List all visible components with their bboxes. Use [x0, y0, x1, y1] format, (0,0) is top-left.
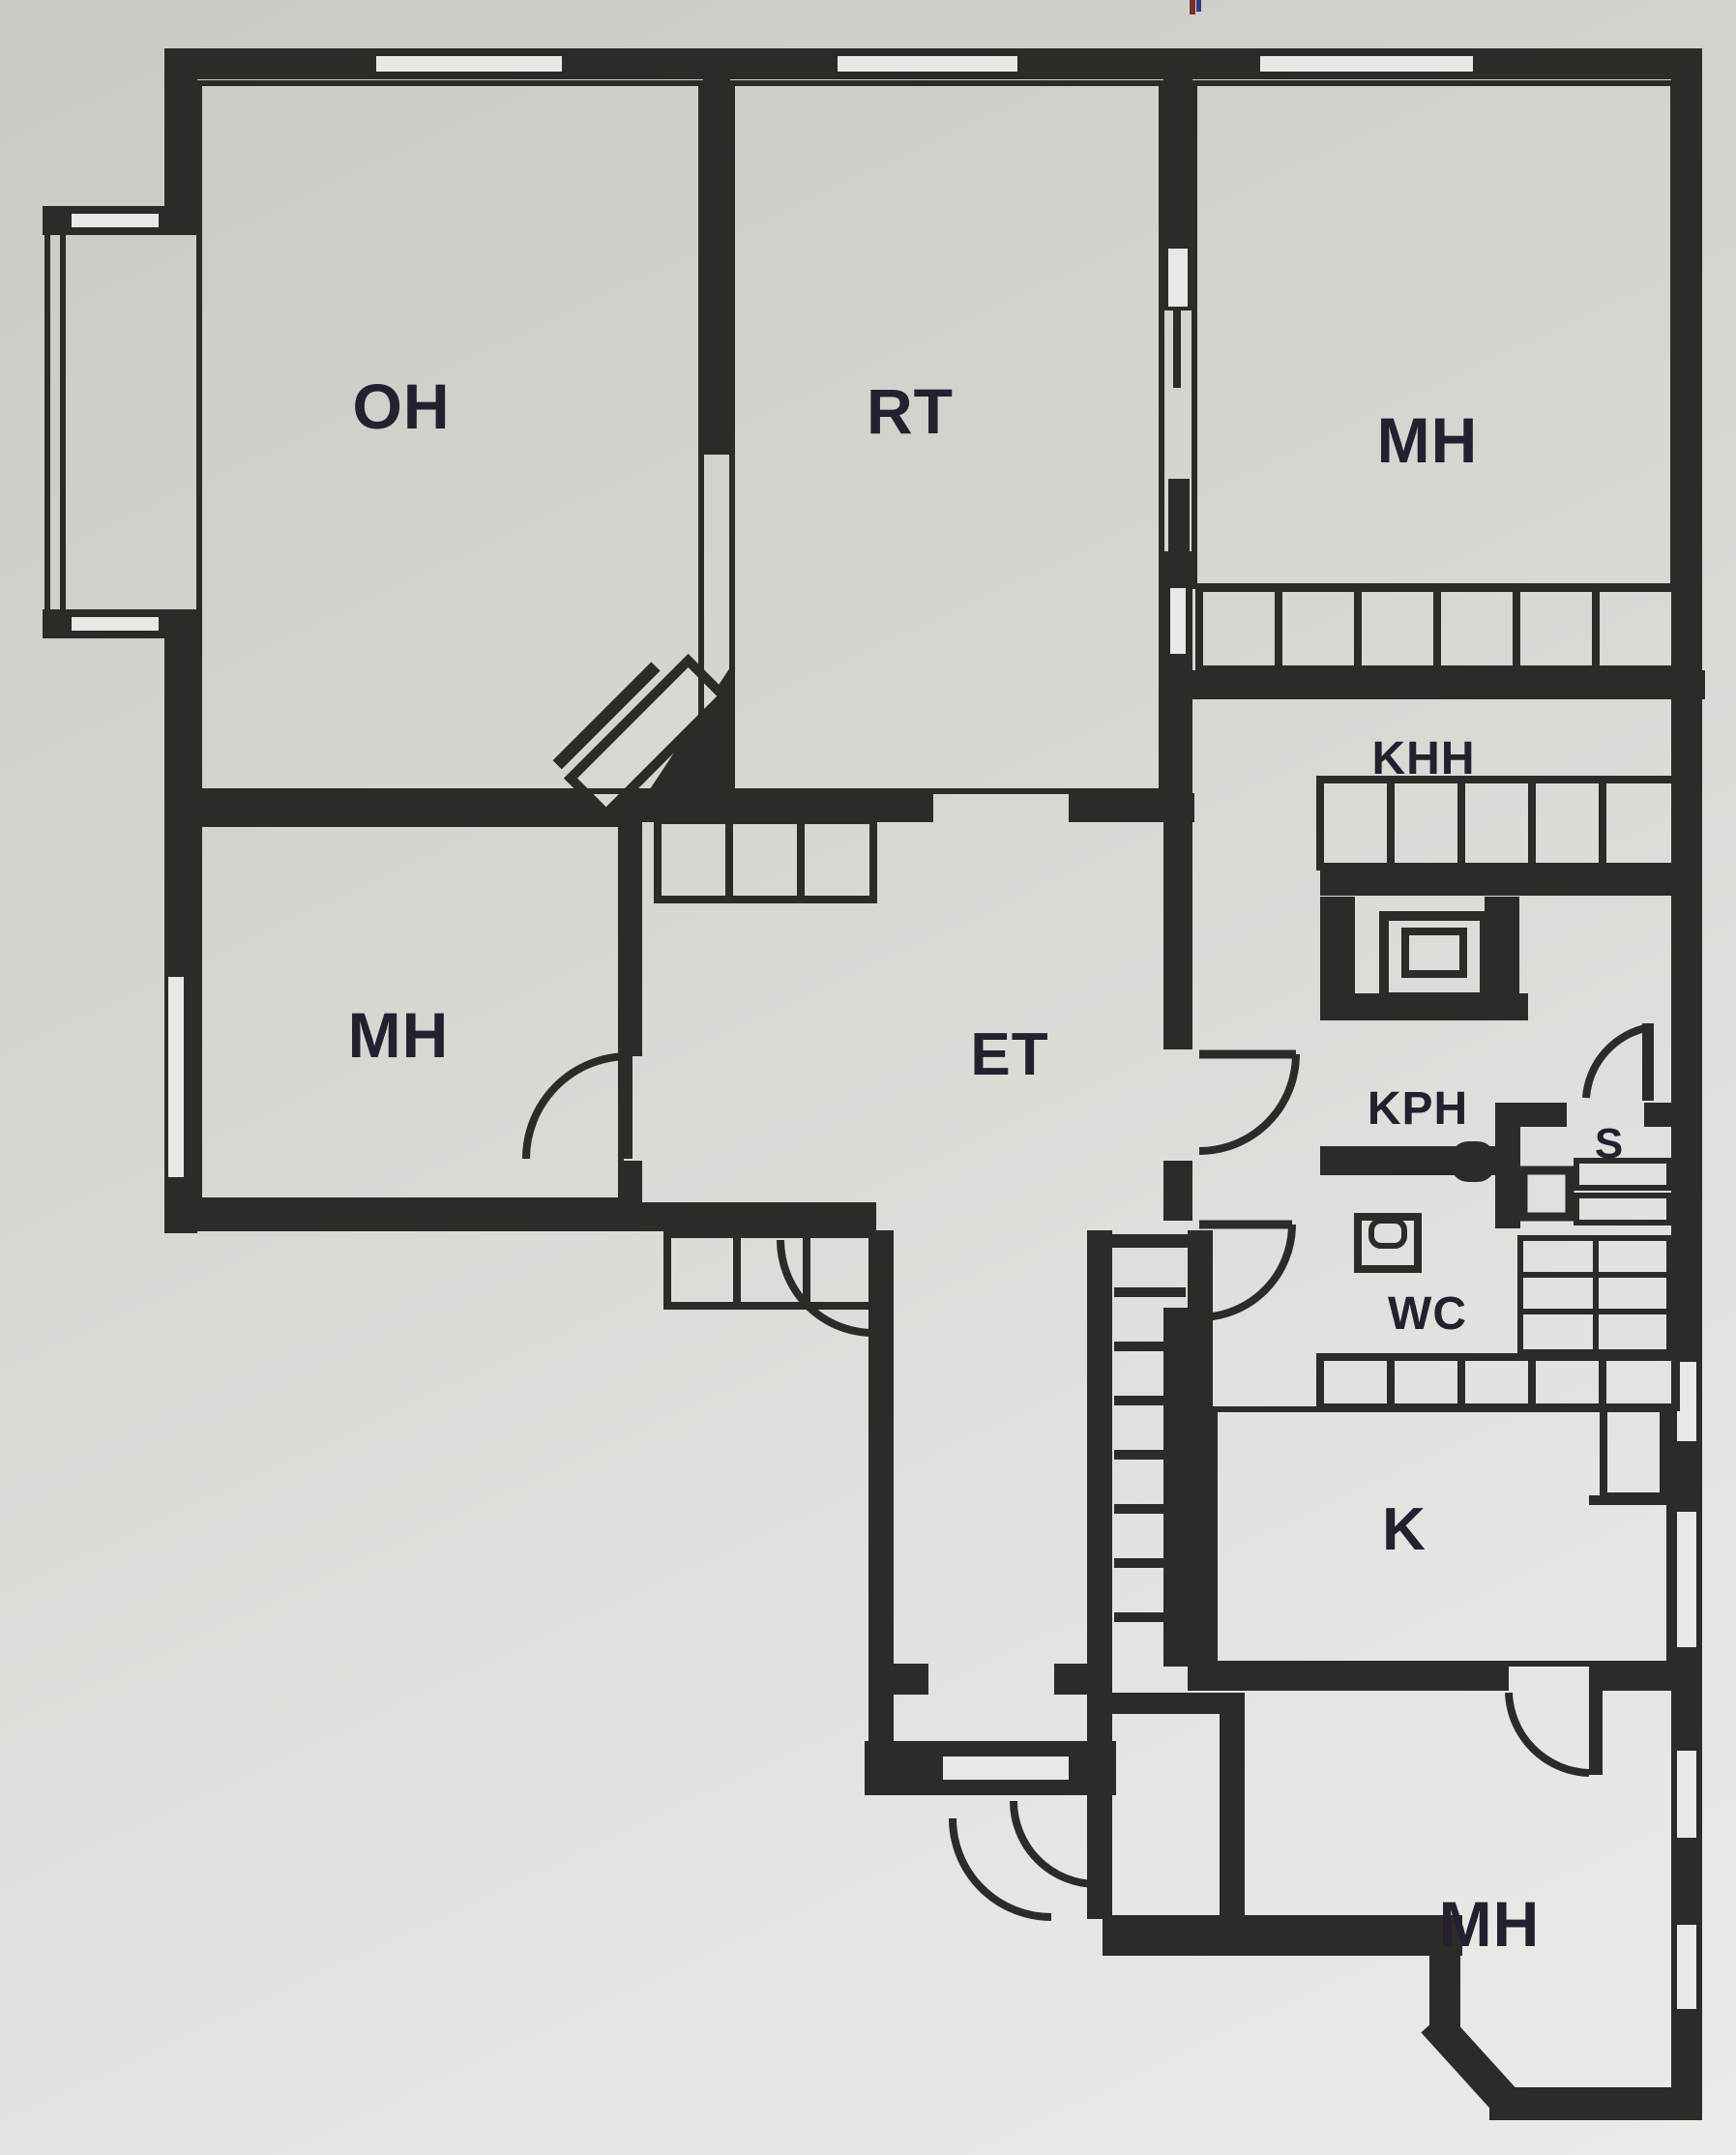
wall: [890, 1664, 928, 1695]
wall-rounded-end: [1451, 1141, 1495, 1182]
door-arc-et: [780, 1240, 873, 1333]
wall-opening: [1168, 586, 1188, 656]
wall: [1163, 670, 1705, 699]
wall: [1489, 2087, 1702, 2120]
washing-machine-icon: [1405, 931, 1463, 974]
door-leaf: [623, 1056, 633, 1159]
room-label-k: K: [1382, 1496, 1427, 1563]
closet-et-lower: [667, 1234, 875, 1306]
wall: [1054, 1664, 1089, 1695]
room-label-khh: KHH: [1372, 733, 1476, 784]
window-frame: [60, 235, 66, 614]
kitchen-cabinet: [1604, 1407, 1663, 1496]
room-label-oh: OH: [353, 370, 451, 442]
door-arc-kph: [1199, 1054, 1296, 1151]
door-leaf: [1589, 1690, 1603, 1775]
window: [1260, 56, 1473, 72]
wall: [1495, 1103, 1567, 1127]
wall: [1644, 1103, 1676, 1127]
room-label-et: ET: [970, 1021, 1048, 1088]
wall: [1220, 1693, 1245, 1938]
top-edge-artifact: [1190, 0, 1195, 15]
wall-opening: [1166, 247, 1190, 309]
toilet-icon: [1371, 1221, 1404, 1246]
door-arc-mh-left: [526, 1056, 629, 1159]
room-label-kph: KPH: [1368, 1083, 1468, 1135]
door-arc-wc: [1199, 1225, 1292, 1317]
wall: [1103, 1915, 1462, 1956]
wall: [164, 1202, 876, 1231]
window: [1677, 1925, 1696, 2009]
wall: [1163, 1161, 1192, 1221]
window: [943, 1756, 1069, 1780]
window: [376, 56, 562, 72]
sauna-bench: [1576, 1196, 1669, 1223]
window-frame: [44, 235, 50, 614]
wall: [1320, 867, 1676, 896]
door-leaf: [1642, 1023, 1654, 1101]
room-label-s: S: [1595, 1120, 1624, 1167]
window: [1677, 1751, 1696, 1838]
wall-chamfer: [1433, 2022, 1509, 2105]
door-leaf: [1003, 1783, 1056, 1792]
closet-khh: [1320, 780, 1676, 867]
floor-plan: OHRTMHMHETKHHKPHSWCKMH: [0, 0, 1736, 2155]
window: [72, 617, 159, 631]
door-arc-entry: [953, 1818, 1051, 1917]
floor-plan-page: OHRTMHMHETKHHKPHSWCKMH: [0, 0, 1736, 2155]
room-outline: [199, 83, 701, 791]
room-label-mh-top-right: MH: [1377, 404, 1479, 476]
window: [72, 214, 159, 227]
room-label-rt: RT: [867, 375, 954, 447]
top-edge-artifact: [1196, 0, 1201, 12]
window: [1677, 1512, 1696, 1647]
wall: [1163, 700, 1192, 1049]
closet-wc-row: [1320, 1357, 1676, 1407]
window: [838, 56, 1017, 72]
room-label-mh-bottom: MH: [1439, 1888, 1541, 1960]
room-label-mh-left: MH: [348, 999, 450, 1071]
wall: [1188, 1666, 1509, 1691]
door-arc-sauna: [1586, 1027, 1650, 1098]
wall: [703, 77, 730, 455]
closet-et-upper: [658, 820, 873, 900]
door-arc-entry: [1014, 1801, 1097, 1884]
wall: [164, 48, 197, 213]
wall: [1589, 1666, 1683, 1691]
room-label-wc: WC: [1388, 1288, 1467, 1340]
sauna-stove-icon: [1523, 1170, 1570, 1217]
room-outline: [1194, 83, 1673, 586]
wall: [1087, 1230, 1112, 1919]
wall: [1112, 1234, 1188, 1248]
window: [168, 977, 184, 1177]
wall: [1163, 77, 1192, 251]
door-leaf: [1173, 309, 1181, 388]
wall: [1188, 1230, 1213, 1667]
door-arc-mh-bottom: [1509, 1693, 1589, 1773]
